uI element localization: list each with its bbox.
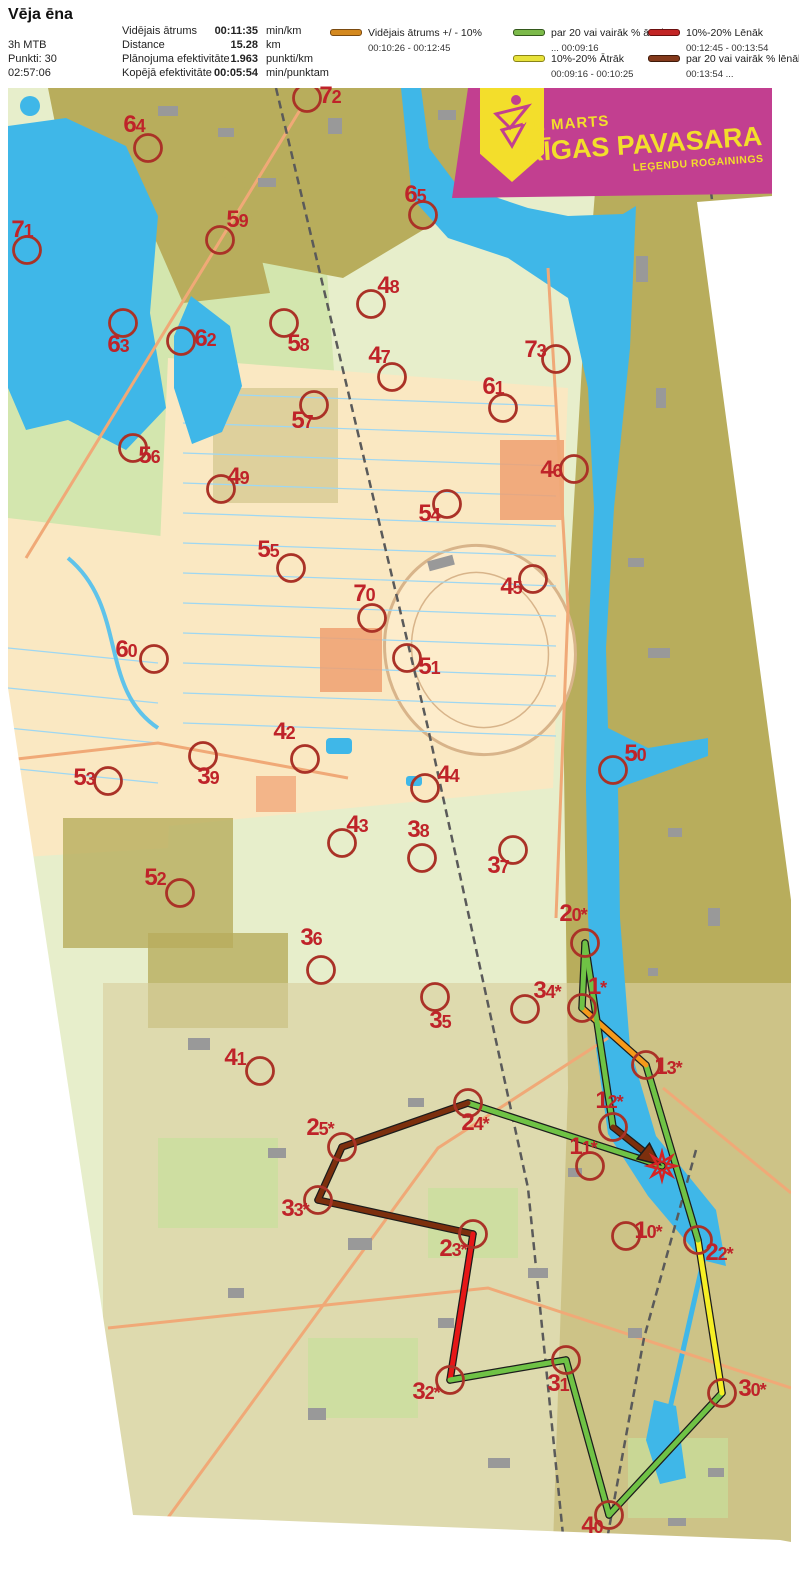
legend-label-slow20: par 20 vai vairāk % lēnāk [686,53,799,65]
legend-label-slow10: 10%-20% Lēnāk [686,27,763,39]
control-circle-47 [379,364,406,391]
control-circle-39 [190,743,217,770]
legend-swatch-slow20 [648,55,680,62]
route-leg-line [450,1360,566,1380]
route-leg-line [468,1103,662,1166]
legend-swatch-slow10 [648,29,680,36]
control-circle-44 [412,775,439,802]
stat-label-speed: Vidējais ātrums [122,25,197,37]
control-circle-35 [422,984,449,1011]
stat-unit-plan-eff: punkti/km [266,53,313,65]
legend-item-fast10: 10%-20% Ātrāk 00:09:16 - 00:10:25 [513,50,633,80]
route-leg-line [342,1103,468,1147]
legend-range-slow20: 00:13:54 ... [686,69,799,80]
page-title: Vēja ēna [8,6,73,24]
stat-unit-speed: min/km [266,25,301,37]
route-overlay [8,88,791,1545]
stat-unit-total-eff: min/punktam [266,67,329,79]
control-circle-61 [490,395,517,422]
control-circle-38 [409,845,436,872]
control-circle-56 [120,435,147,462]
control-circle-49 [208,476,235,503]
control-circle-59 [207,227,234,254]
control-circle-65 [410,202,437,229]
legend-item-slow20: par 20 vai vairāk % lēnāk 00:13:54 ... [648,50,799,80]
legend-label-fast10: 10%-20% Ātrāk [551,53,624,65]
control-circle-55 [278,555,305,582]
control-circle-42 [292,746,319,773]
points-label: Punkti: 30 [8,53,57,65]
control-circle-64 [135,135,162,162]
control-circle-54 [434,491,461,518]
stat-value-total-eff: 00:05:54 [198,67,258,79]
control-circle-46 [561,456,588,483]
control-circle-36 [308,957,335,984]
header: Vēja ēna 3h MTB Punkti: 30 02:57:06 Vidē… [0,0,799,88]
control-circle-34* [512,996,539,1023]
legend-label-average: Vidējais ātrums +/ - 10% [368,27,482,39]
control-circle-73 [543,346,570,373]
route-leg-line [318,1200,473,1234]
control-circle-37 [500,837,527,864]
stat-value-distance: 15.28 [198,39,258,51]
control-circle-57 [301,392,328,419]
control-circle-58 [271,310,298,337]
control-circle-53 [95,768,122,795]
control-circle-45 [520,566,547,593]
legend-range-average: 00:10:26 - 00:12:45 [368,43,482,54]
map-canvas: 7264715965636258484773614657564954554570… [8,88,791,1545]
route-leg-line [609,1393,722,1515]
route-leg-line [566,1360,609,1515]
banner-texts: 21. MARTS RĪGAS PAVASARA LEĢENDU ROGAINI… [522,102,764,181]
event-banner: 21. MARTS RĪGAS PAVASARA LEĢENDU ROGAINI… [452,88,772,198]
legend-range-fast10: 00:09:16 - 00:10:25 [551,69,633,80]
route-leg-line [698,1240,722,1393]
page: { "header": { "title": "Vēja ēna", "clas… [0,0,799,1590]
control-circle-70 [359,605,386,632]
control-circle-72 [294,88,321,112]
control-circle-50 [600,757,627,784]
legend-swatch-fast20 [513,29,545,36]
total-time: 02:57:06 [8,67,51,79]
control-circle-52 [167,880,194,907]
control-circle-62 [168,328,195,355]
control-circle-71 [14,237,41,264]
legend-swatch-average [330,29,362,36]
stat-unit-distance: km [266,39,281,51]
stat-value-plan-eff: 1.963 [198,53,258,65]
control-circle-11* [577,1153,604,1180]
control-circle-10* [613,1223,640,1250]
control-circle-48 [358,291,385,318]
stat-label-distance: Distance [122,39,165,51]
legend-item-average: Vidējais ātrums +/ - 10% 00:10:26 - 00:1… [330,24,482,54]
legend-swatch-fast10 [513,55,545,62]
stat-value-speed: 00:11:35 [198,25,258,37]
control-circle-51 [394,645,421,672]
class-label: 3h MTB [8,39,47,51]
control-circle-43 [329,830,356,857]
control-circle-60 [141,646,168,673]
route-leg-line [450,1234,473,1380]
control-circle-41 [247,1058,274,1085]
control-circle-63 [110,310,137,337]
